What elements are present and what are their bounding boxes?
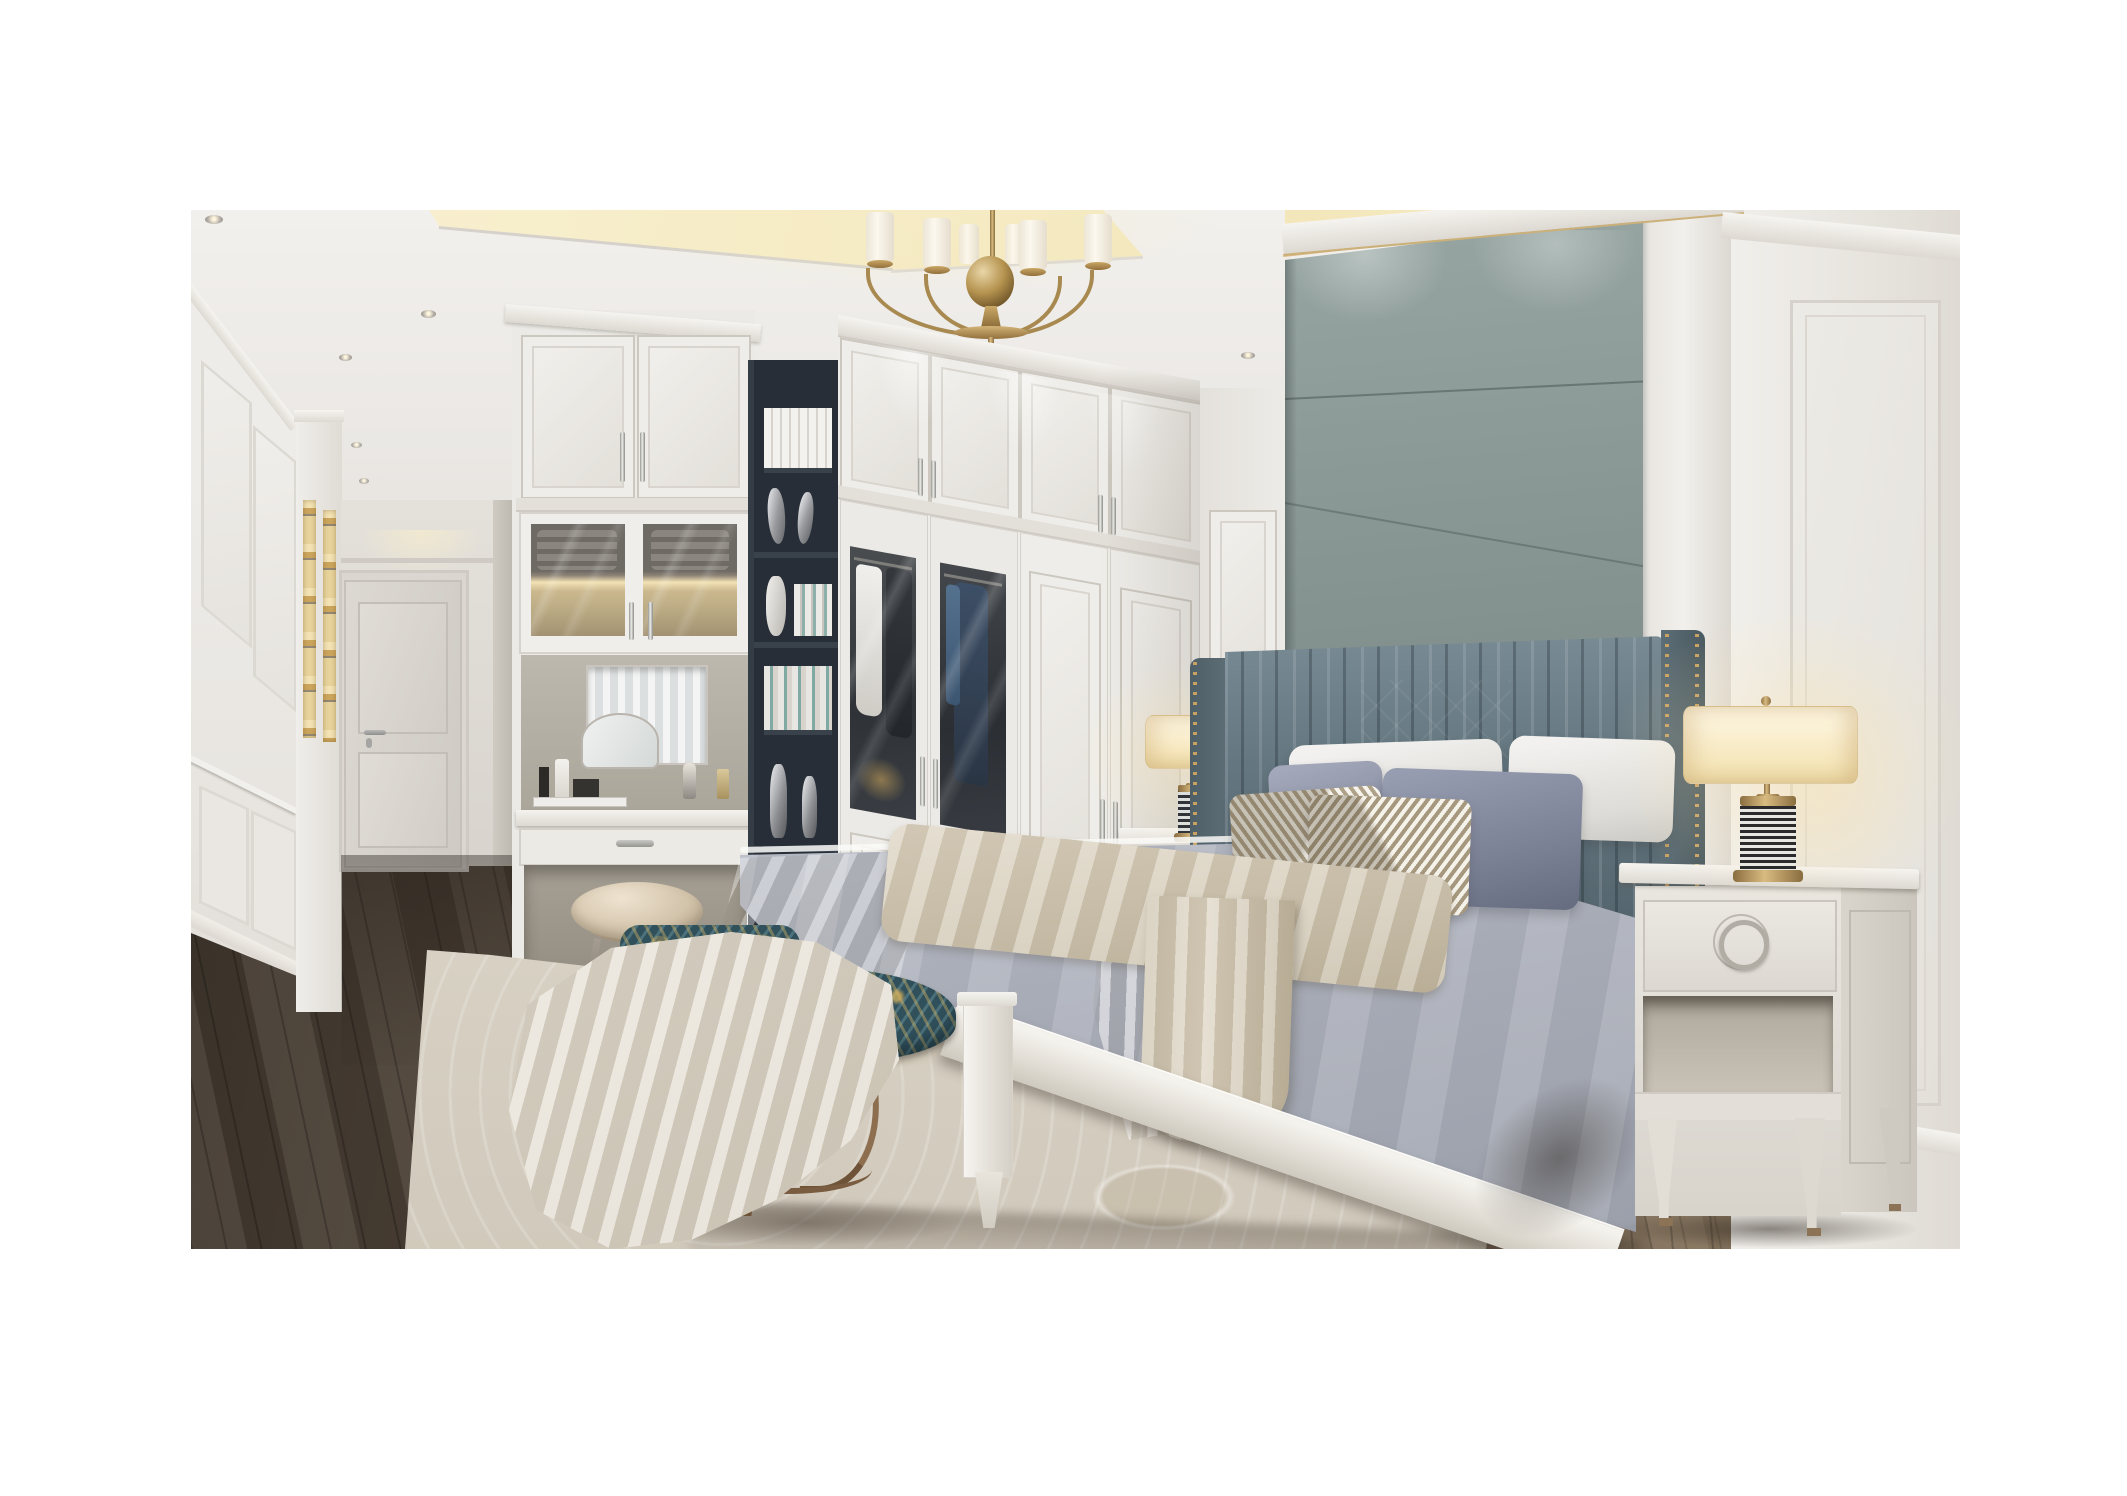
vanity-divider (516, 498, 751, 512)
nightstand-open-shelf (1643, 996, 1833, 1092)
hallway (341, 500, 513, 866)
shelf-books-white (794, 584, 832, 636)
cosmetics-box (573, 779, 599, 799)
chandelier-cup (867, 260, 893, 268)
nightstand-side (1841, 886, 1917, 1212)
glass-reflection (940, 563, 1006, 837)
lamp-shade (1683, 706, 1858, 784)
downlight (359, 478, 369, 484)
vanity-tray (533, 797, 627, 807)
hutch-glass (531, 524, 625, 636)
downlight (1241, 352, 1255, 359)
hall-return-wall (493, 500, 513, 866)
wardrobe-downwash (868, 342, 958, 488)
chandelier-cup (1085, 262, 1111, 270)
chandelier-candle-back (959, 224, 979, 264)
chandelier-candle (923, 218, 951, 268)
lit-niche-strip (323, 510, 336, 742)
drawer-handle (616, 840, 654, 847)
shelf-vase-white (766, 576, 786, 636)
bedroom-photo (191, 210, 1960, 1249)
hutch-glass (643, 524, 737, 636)
leg-metal-cap (1889, 1204, 1901, 1211)
accent-wall-scallop (1445, 230, 1665, 380)
render-canvas (0, 0, 2127, 1496)
leg-metal-cap (1807, 1228, 1821, 1236)
downlight (205, 215, 223, 224)
glass-reflection (643, 524, 737, 636)
wall-panel (253, 425, 297, 713)
interior-door (344, 580, 462, 868)
shelf-divider (754, 552, 845, 558)
vanity-upper-door (521, 335, 635, 499)
lamp-base (1733, 870, 1803, 882)
wainscot-panel (251, 810, 297, 951)
shelf-silver-sculpture (766, 487, 787, 544)
wainscot-panel (199, 785, 249, 926)
wall-panel (201, 360, 252, 649)
chandelier-cup (924, 266, 950, 274)
cabinet-handle (640, 432, 645, 482)
wardrobe-downwash (978, 366, 1068, 512)
downlight (351, 442, 362, 448)
chandelier-candle (866, 212, 894, 262)
perfume-bottle (717, 769, 729, 799)
lamp-cap (1740, 796, 1796, 806)
shelf-books-white (764, 408, 832, 473)
table-lamp-right (1611, 610, 1960, 910)
shelf-silver-vase (770, 764, 787, 838)
shelf-silver-vase (802, 776, 817, 838)
lit-niche-strip (303, 500, 316, 738)
chandelier-cup (1020, 268, 1046, 276)
cosmetics-bottle (539, 767, 549, 799)
cabinet-handle (920, 756, 925, 807)
vanity-upper-door (637, 335, 751, 499)
leg-metal-cap (1659, 1218, 1673, 1226)
cosmetics-bottle (555, 759, 569, 799)
chandelier-candle (1084, 214, 1112, 264)
cabinet-handle (648, 602, 653, 640)
cabinet-handle (629, 602, 634, 640)
nightstand-apron (1635, 1092, 1841, 1120)
hall-header-molding (341, 558, 513, 563)
chandelier-candle (1019, 220, 1047, 270)
lamp-body-striped (1740, 800, 1796, 872)
pillar-crown (294, 410, 344, 422)
figurine (683, 763, 696, 799)
shelf-silver-sculpture (796, 491, 815, 544)
accent-panel-seam (1285, 502, 1646, 568)
lamp-finial (1761, 696, 1771, 706)
tabletop-mirror (581, 713, 659, 769)
chandelier-sphere (966, 256, 1014, 308)
wardrobe-downwash (1078, 389, 1168, 535)
garment-glass (940, 563, 1006, 837)
display-niche-pillar (296, 418, 342, 1012)
vanity-glass-hutch (519, 512, 753, 654)
door-escutcheon (366, 738, 372, 748)
downlight (421, 310, 436, 318)
glass-reflection (850, 546, 916, 820)
door-handle (364, 730, 386, 735)
door-panel-upper (358, 602, 448, 734)
shelf-books-teal (764, 666, 832, 735)
vanity-niche (521, 655, 749, 810)
cabinet-handle (933, 758, 938, 809)
downlight (339, 354, 352, 361)
chandelier-stem (990, 210, 995, 262)
vanity-counter (516, 810, 754, 826)
vanity-drawer (519, 828, 755, 866)
door-panel-lower (358, 752, 448, 848)
shelf-divider (754, 642, 845, 648)
garment-glass (850, 546, 916, 820)
drawer-ring-pull (1719, 920, 1769, 970)
cabinet-handle (620, 432, 625, 482)
glass-reflection (531, 524, 625, 636)
